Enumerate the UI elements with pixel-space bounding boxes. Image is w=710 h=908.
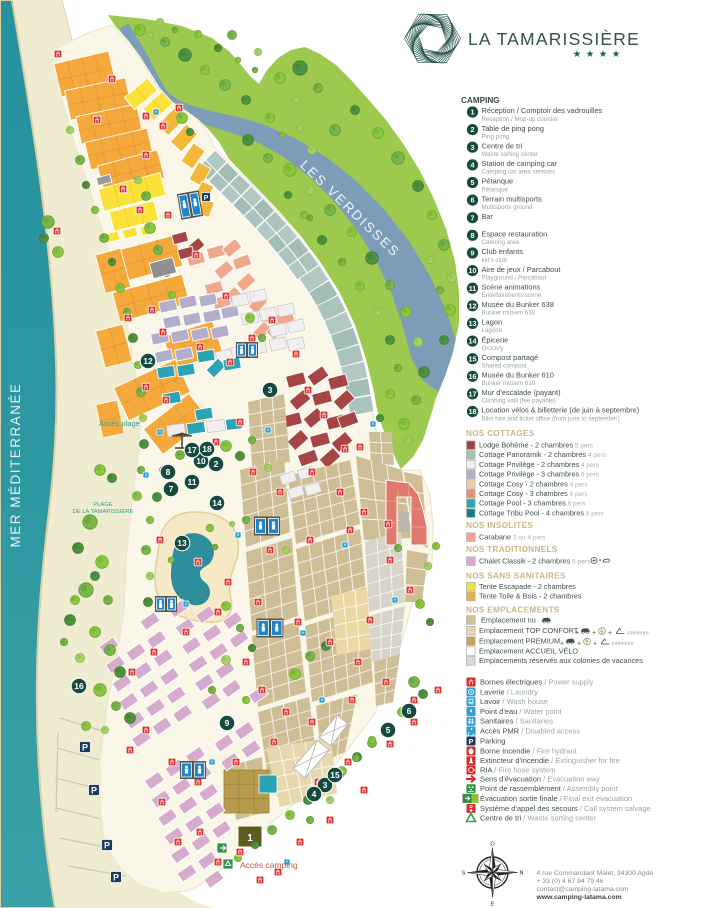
svg-text:Parking: Parking — [480, 736, 505, 745]
svg-text:6: 6 — [407, 706, 412, 716]
svg-text:N: N — [520, 871, 524, 877]
svg-text:Lodge Bohème - 2 chambres 5 pe: Lodge Bohème - 2 chambres 5 pers — [479, 441, 594, 450]
svg-text:13: 13 — [177, 538, 187, 548]
svg-text:8: 8 — [471, 231, 475, 240]
svg-text:Système d'appel des secours /: Système d'appel des secours / Call syste… — [480, 804, 651, 813]
svg-text:Accès camping: Accès camping — [240, 860, 298, 870]
svg-text:Playground / Parcabout: Playground / Parcabout — [482, 274, 547, 281]
svg-text:Emplacement nu: Emplacement nu — [479, 615, 536, 624]
svg-text:15: 15 — [469, 354, 477, 363]
svg-text:14: 14 — [212, 498, 222, 508]
svg-text:MER MÉDITERRANÉE: MER MÉDITERRANÉE — [8, 382, 23, 547]
svg-text:Pétanque: Pétanque — [482, 186, 509, 193]
svg-text:Table de ping pong: Table de ping pong — [482, 124, 544, 133]
svg-text:★: ★ — [612, 49, 621, 60]
svg-text:Emplacement ACCUEIL VÉLO: Emplacement ACCUEIL VÉLO — [479, 646, 578, 655]
svg-text:18: 18 — [469, 407, 477, 416]
svg-text:Climbing wall (fee payable): Climbing wall (fee payable) — [482, 398, 556, 405]
svg-text:Cottage Pool - 3 chambres 6 pe: Cottage Pool - 3 chambres 6 pers — [479, 499, 586, 508]
svg-text:Laverie / Laundry: Laverie / Laundry — [480, 687, 538, 696]
svg-text:11: 11 — [188, 477, 197, 487]
svg-text:★: ★ — [573, 49, 582, 60]
svg-text:3: 3 — [323, 780, 328, 790]
svg-text:Emplacement PREMIUM: Emplacement PREMIUM — [479, 636, 560, 645]
svg-text:10: 10 — [196, 456, 206, 466]
svg-text:6: 6 — [471, 196, 475, 205]
svg-text:Emplacement TOP CONFORT: Emplacement TOP CONFORT — [479, 626, 579, 635]
svg-text:4 rue Commandant Malet, 34300: 4 rue Commandant Malet, 34300 Agde — [537, 870, 654, 877]
svg-text:Catering area: Catering area — [482, 239, 520, 246]
svg-text:Accès PMR / Disabled access: Accès PMR / Disabled access — [480, 726, 580, 735]
svg-text:13: 13 — [469, 319, 477, 328]
svg-text:Club enfants: Club enfants — [482, 247, 524, 256]
svg-text:Aire de jeux / Parcabout: Aire de jeux / Parcabout — [482, 265, 561, 274]
svg-text:Centre de tri / Waste sorting: Centre de tri / Waste sorting center — [480, 813, 597, 822]
svg-text:+: + — [608, 630, 612, 637]
svg-text:PLAGE: PLAGE — [93, 502, 112, 508]
svg-text:contact@camping-latama.com: contact@camping-latama.com — [537, 886, 629, 893]
svg-text:Lagoon: Lagoon — [482, 327, 503, 334]
svg-text:kid's club: kid's club — [482, 257, 508, 264]
svg-text:10: 10 — [469, 266, 477, 275]
svg-text:P: P — [104, 841, 110, 851]
svg-text:Bunker musem 638: Bunker musem 638 — [482, 310, 536, 317]
svg-text:17: 17 — [469, 390, 477, 399]
svg-text:★: ★ — [599, 49, 608, 60]
svg-text:8: 8 — [166, 467, 171, 477]
svg-text:Centre de tri: Centre de tri — [482, 141, 523, 150]
svg-text:5: 5 — [386, 725, 391, 735]
svg-text:Bornes électriques / Power sup: Bornes électriques / Power supply — [480, 677, 594, 686]
svg-text:2: 2 — [214, 459, 219, 469]
svg-text:P: P — [82, 743, 88, 753]
svg-text:Waste sorting center: Waste sorting center — [482, 151, 539, 158]
svg-text:Sanitaires / Sanitaries: Sanitaires / Sanitaries — [480, 717, 553, 726]
svg-text:3: 3 — [471, 143, 475, 152]
svg-text:Grocery: Grocery — [482, 345, 505, 352]
svg-text:Multisports ground: Multisports ground — [482, 204, 533, 211]
svg-text:Accès plage: Accès plage — [99, 419, 140, 428]
svg-text:www.camping-latama.com: www.camping-latama.com — [536, 894, 622, 901]
svg-text:Cottage Cosy - 3 chambres 6 pe: Cottage Cosy - 3 chambres 6 pers — [479, 489, 588, 498]
svg-text:7: 7 — [169, 484, 174, 494]
svg-text:1: 1 — [471, 108, 475, 117]
svg-text:14: 14 — [469, 337, 477, 346]
svg-text:Terrain multisports: Terrain multisports — [482, 194, 543, 203]
svg-text:Bike hire and ticket office (f: Bike hire and ticket office (from june t… — [482, 415, 620, 422]
svg-text:17: 17 — [187, 445, 197, 455]
svg-text:NOS TRADITIONNELS: NOS TRADITIONNELS — [466, 545, 558, 554]
svg-text:P: P — [469, 739, 474, 746]
svg-text:RIA / Fire hose system: RIA / Fire hose system — [480, 765, 555, 774]
svg-text:P: P — [204, 195, 209, 202]
svg-text:Espace restauration: Espace restauration — [482, 230, 548, 239]
svg-text:Ping pong: Ping pong — [482, 133, 510, 140]
svg-text:O: O — [490, 842, 495, 848]
svg-text:Chalet Classik - 2 chambres 5: Chalet Classik - 2 chambres 5 pers — [479, 557, 591, 566]
svg-text:DE LA TAMARISSIÈRE: DE LA TAMARISSIÈRE — [73, 508, 134, 515]
svg-text:Reception / Mop-up counter: Reception / Mop-up counter — [482, 116, 558, 123]
svg-text:+ 33 (0) 4 67 94 79 46: + 33 (0) 4 67 94 79 46 — [537, 878, 604, 885]
svg-text:Tente Toile & Bois - 2 chambre: Tente Toile & Bois - 2 chambres — [479, 592, 582, 601]
svg-text:Tente Escapade - 2 chambres: Tente Escapade - 2 chambres — [479, 582, 576, 591]
svg-text:5: 5 — [471, 178, 475, 187]
svg-text:16: 16 — [469, 372, 477, 381]
svg-text:Musée du Bunker 610: Musée du Bunker 610 — [482, 371, 554, 380]
svg-text:Point de rassemblement / Assem: Point de rassemblement / Assembly point — [480, 784, 618, 793]
svg-text:P: P — [113, 873, 119, 883]
svg-text:+: + — [575, 630, 579, 637]
svg-text:S: S — [462, 871, 466, 877]
svg-text:P: P — [91, 786, 97, 796]
svg-text:Bunker musem 610: Bunker musem 610 — [482, 380, 536, 387]
svg-text:Sens d'évacuation / Evacuation: Sens d'évacuation / Evacuation way — [480, 774, 600, 783]
svg-text:NOS SANS SANITAIRES: NOS SANS SANITAIRES — [466, 572, 566, 581]
svg-text:LA TAMARISSIÈRE: LA TAMARISSIÈRE — [468, 29, 640, 49]
svg-text:Réception / Comptoir des vadro: Réception / Comptoir des vadrouilles — [482, 106, 603, 115]
svg-text:Extincteur d'incendie / Exting: Extincteur d'incendie / Extinguisher for… — [480, 756, 620, 765]
svg-text:Station de camping car: Station de camping car — [482, 159, 558, 168]
svg-text:Location vélos & billetterie (: Location vélos & billetterie (de juin à … — [482, 406, 640, 415]
svg-text:9: 9 — [471, 249, 475, 258]
svg-text:Cottage Privilège - 3 chambres: Cottage Privilège - 3 chambres 6 pers — [479, 470, 600, 479]
svg-text:15: 15 — [330, 770, 340, 780]
svg-text:Musée du Bunker 638: Musée du Bunker 638 — [482, 300, 554, 309]
svg-text:intérieure: intérieure — [627, 631, 649, 637]
svg-text:Cottage Cosy - 2 chambres 4 pe: Cottage Cosy - 2 chambres 4 pers — [479, 479, 588, 488]
svg-text:12: 12 — [143, 356, 153, 366]
svg-text:Point d'eau / Water point: Point d'eau / Water point — [480, 707, 563, 716]
svg-text:11: 11 — [469, 284, 477, 293]
svg-text:intérieure: intérieure — [612, 641, 634, 647]
svg-text:+: + — [593, 641, 597, 648]
svg-text:Mur d'escalade (payant): Mur d'escalade (payant) — [482, 388, 561, 397]
svg-text:Compost partagé: Compost partagé — [482, 353, 539, 362]
svg-text:Shared compost: Shared compost — [482, 363, 527, 370]
svg-text:Épicerie: Épicerie — [482, 335, 509, 344]
svg-text:Lagon: Lagon — [482, 318, 503, 327]
svg-text:CAMPING: CAMPING — [461, 96, 500, 105]
svg-text:Cottage Panoramik - 2 chambres: Cottage Panoramik - 2 chambres 4 pers — [479, 450, 607, 459]
svg-text:Emplacements réservés aux colo: Emplacements réservés aux colonies de va… — [479, 656, 643, 665]
svg-text:Cottage Tribu Pool - 4 chambre: Cottage Tribu Pool - 4 chambres 8 pers — [479, 508, 605, 517]
svg-text:NOS EMPLACEMENTS: NOS EMPLACEMENTS — [466, 606, 560, 615]
svg-text:Pétanque: Pétanque — [482, 177, 514, 186]
svg-text:4: 4 — [471, 161, 475, 170]
svg-text:Camping car area services: Camping car area services — [482, 169, 556, 176]
svg-text:Borne Incendie / Fire hydrant: Borne Incendie / Fire hydrant — [480, 746, 578, 755]
svg-text:•: • — [599, 559, 601, 565]
svg-text:3: 3 — [268, 385, 273, 395]
svg-text:12: 12 — [469, 301, 477, 310]
svg-text:E: E — [491, 902, 495, 908]
svg-text:Lavoir / Wash house: Lavoir / Wash house — [480, 697, 548, 706]
svg-text:16: 16 — [74, 681, 84, 691]
svg-text:2: 2 — [471, 125, 475, 134]
svg-text:NOS INSOLITES: NOS INSOLITES — [466, 521, 533, 530]
svg-text:9: 9 — [225, 718, 230, 728]
svg-text:Entertainments scene: Entertainments scene — [482, 292, 542, 299]
svg-text:+: + — [592, 630, 596, 637]
svg-text:Cottage Privilège - 2 chambres: Cottage Privilège - 2 chambres 4 pers — [479, 460, 600, 469]
svg-text:Évacuation sortie finale / Fin: Évacuation sortie finale / Final exit ev… — [480, 794, 632, 803]
svg-text:Carabane 3 ou 4 pers: Carabane 3 ou 4 pers — [479, 533, 546, 542]
svg-text:★: ★ — [586, 49, 595, 60]
svg-text:18: 18 — [202, 444, 212, 454]
svg-text:4: 4 — [312, 789, 317, 799]
svg-text:NOS COTTAGES: NOS COTTAGES — [466, 429, 535, 438]
svg-text:Bar: Bar — [482, 212, 494, 221]
svg-text:7: 7 — [471, 213, 475, 222]
svg-text:Scène animations: Scène animations — [482, 282, 541, 291]
